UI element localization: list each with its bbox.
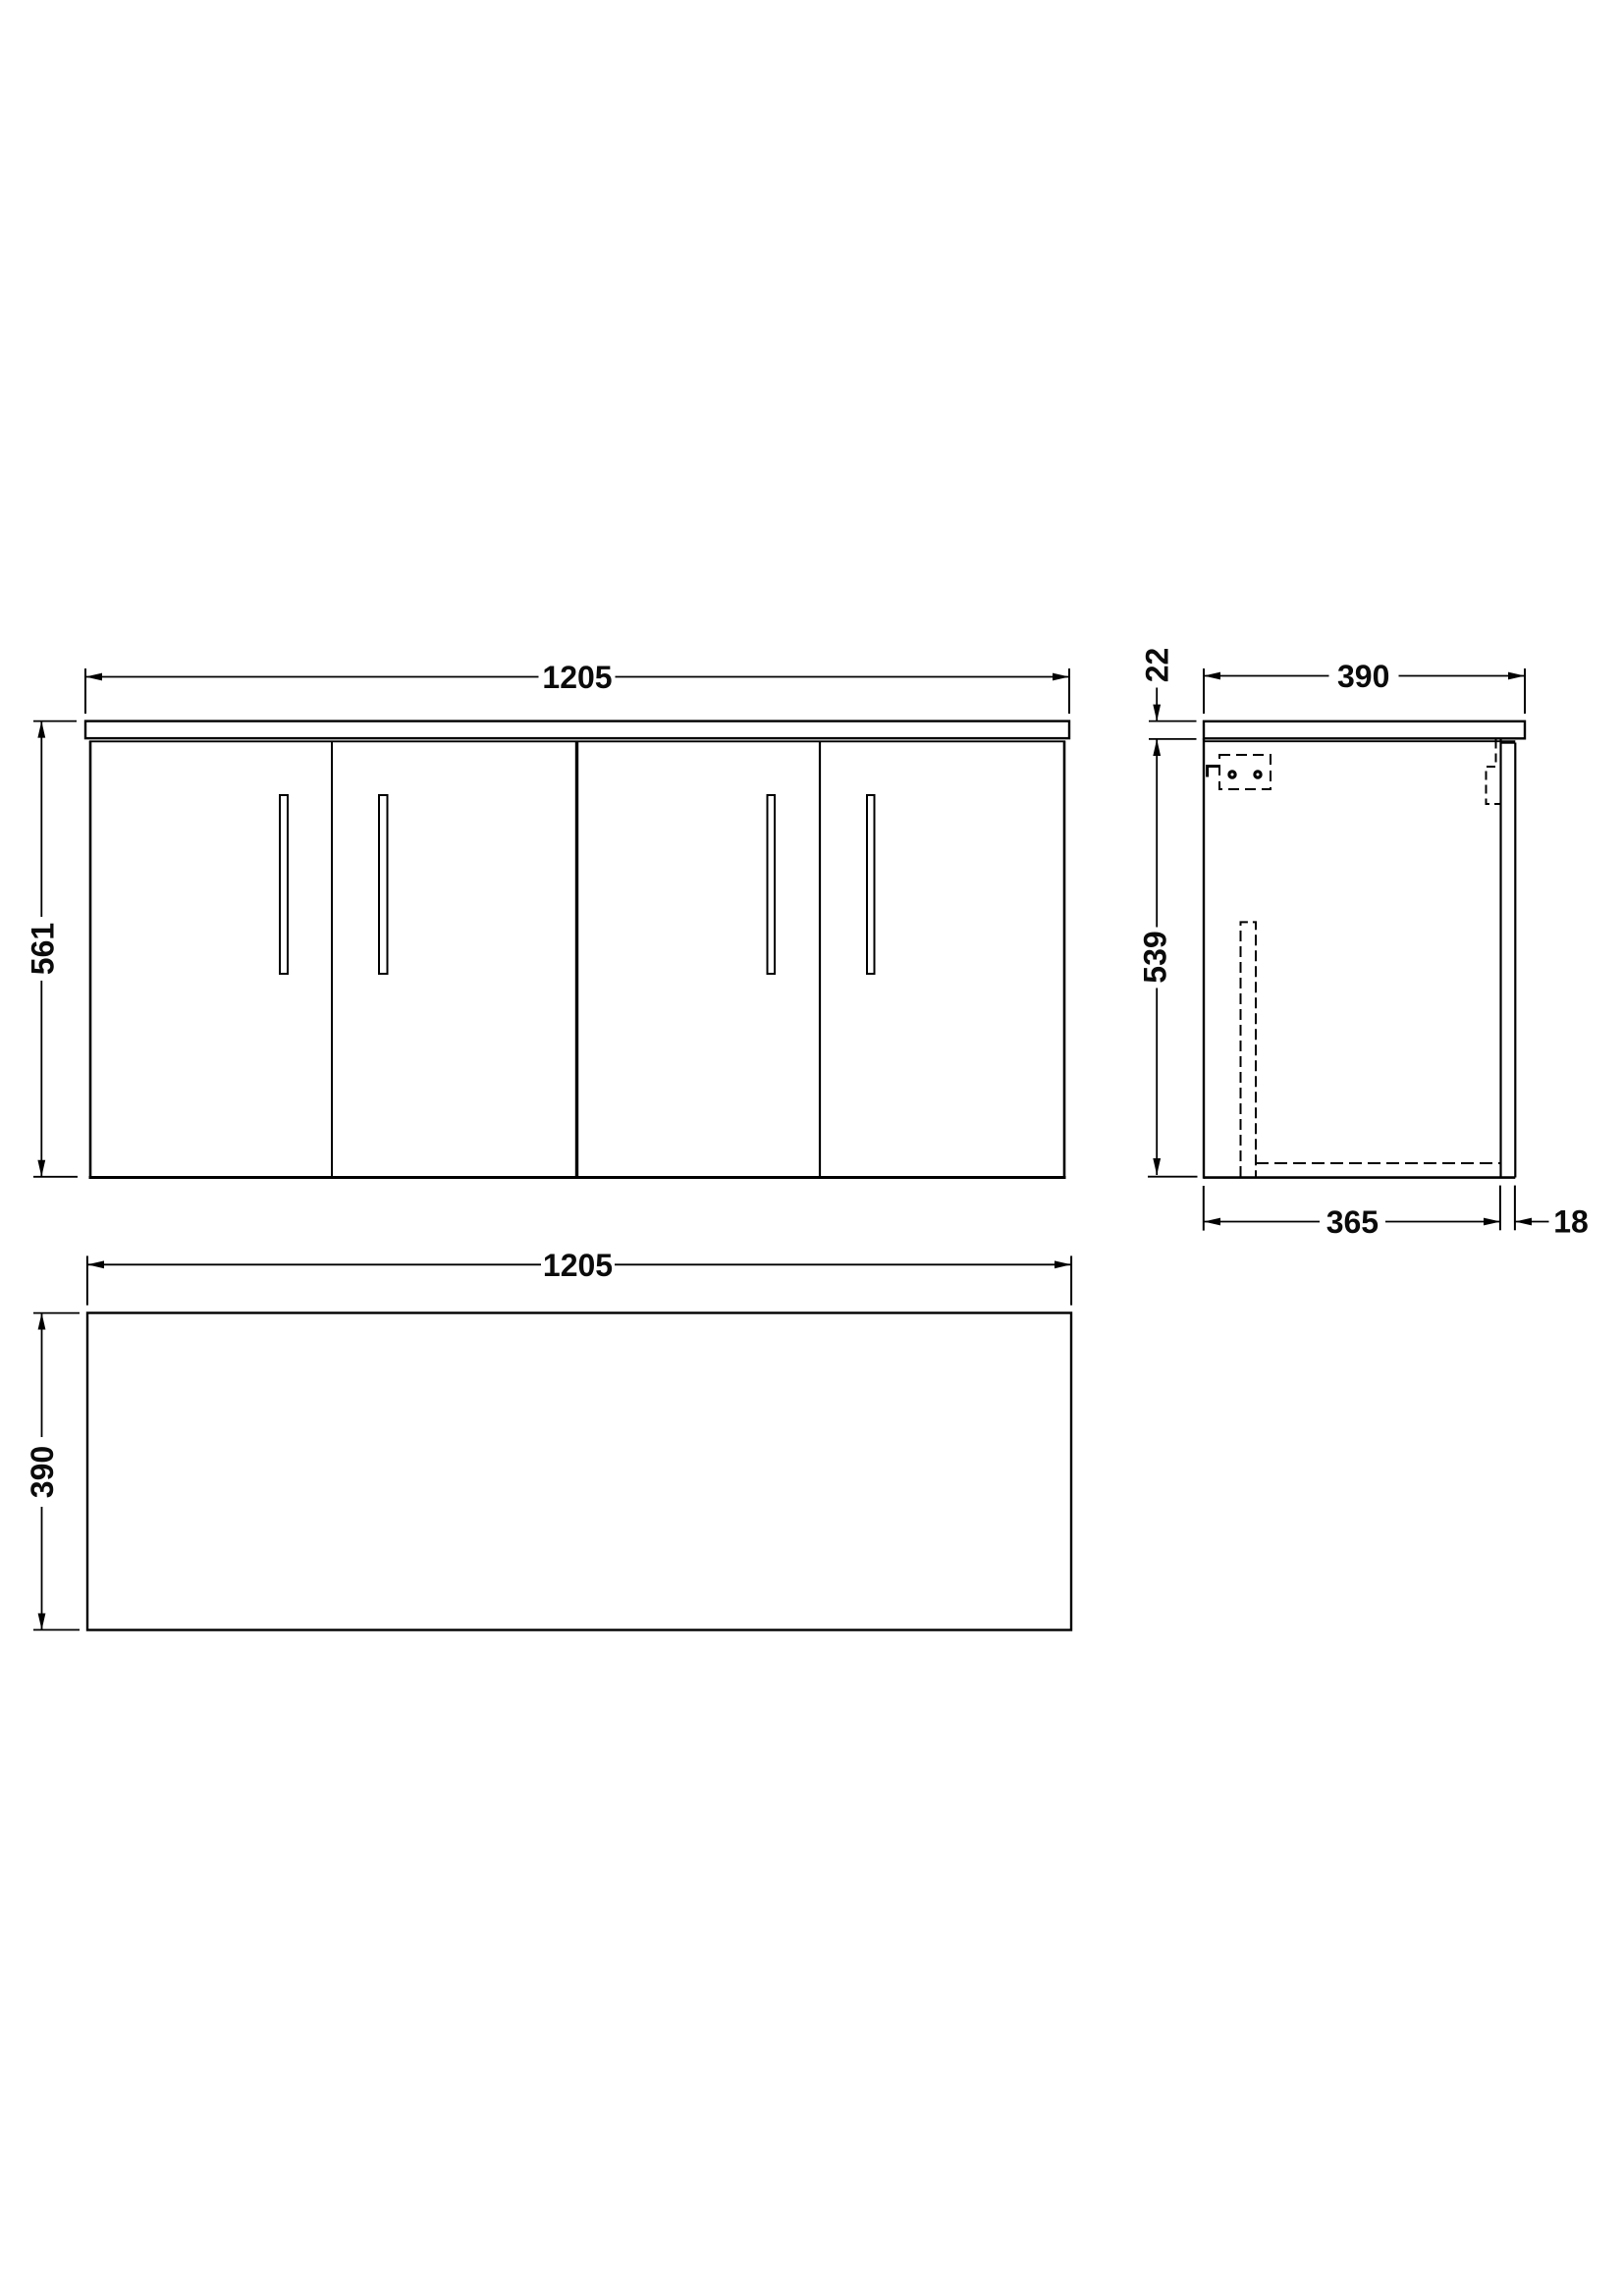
svg-text:390: 390 (1337, 659, 1389, 694)
svg-text:365: 365 (1326, 1204, 1379, 1240)
svg-text:539: 539 (1138, 931, 1173, 983)
svg-text:390: 390 (25, 1446, 60, 1498)
svg-text:22: 22 (1139, 648, 1174, 683)
svg-text:18: 18 (1553, 1204, 1589, 1240)
svg-text:561: 561 (26, 923, 61, 975)
svg-text:1205: 1205 (542, 660, 612, 695)
svg-text:1205: 1205 (543, 1248, 613, 1283)
